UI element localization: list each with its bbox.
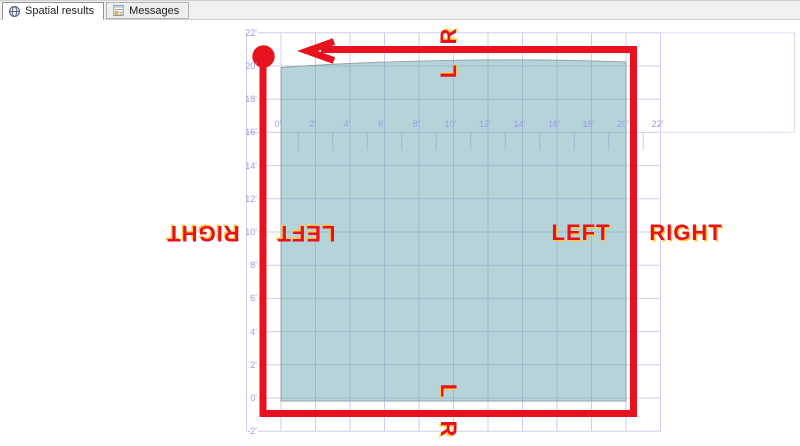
right-edge-outer-label: RIGHT (649, 222, 722, 244)
y-tick-label: 6' (250, 293, 257, 303)
right-edge-inner-label: LEFT (552, 222, 611, 244)
results-tab-bar: Spatial results Messages (0, 0, 800, 20)
y-tick-label: -2' (247, 426, 257, 436)
x-tick-label: 12' (479, 119, 491, 129)
y-tick-label: 12' (245, 194, 257, 204)
left-edge-inner-label: LEFT (277, 222, 336, 244)
y-tick-label: 2' (250, 360, 257, 370)
x-tick-label: 10' (445, 119, 457, 129)
y-tick-label: 4' (250, 327, 257, 337)
bottom-edge-outer-label: R (437, 421, 459, 438)
y-tick-label: 20' (245, 61, 257, 71)
y-tick-label: 8' (250, 260, 257, 270)
x-tick-label: 14' (514, 119, 526, 129)
bottom-edge-inner-label: L (437, 384, 459, 398)
y-tick-label: 0' (250, 393, 257, 403)
left-edge-outer-label: RIGHT (166, 222, 239, 244)
tab-label: Spatial results (25, 5, 94, 17)
tab-spatial-results[interactable]: Spatial results (2, 2, 104, 20)
messages-icon (112, 4, 125, 17)
y-tick-label: 22' (245, 28, 257, 38)
tab-label: Messages (129, 5, 179, 17)
y-tick-label: 16' (245, 127, 257, 137)
top-edge-outer-label: R (438, 28, 460, 45)
y-tick-label: 18' (245, 94, 257, 104)
x-tick-label: 22' (652, 119, 664, 129)
x-tick-label: 4' (344, 119, 351, 129)
top-edge-inner-label: L (438, 64, 460, 78)
x-tick-label: 6' (378, 119, 385, 129)
x-tick-label: 20' (617, 119, 629, 129)
spatial-viewer-canvas[interactable]: 22' 20' 18' 16' 14' 12' 10' 8' 6' 4' 2' … (0, 0, 800, 446)
x-tick-label: 18' (583, 119, 595, 129)
tab-messages[interactable]: Messages (106, 2, 189, 19)
y-tick-label: 10' (245, 227, 257, 237)
x-tick-label: 2' (309, 119, 316, 129)
x-tick-label: 0' (275, 119, 282, 129)
x-tick-label: 16' (548, 119, 560, 129)
y-tick-label: 14' (245, 161, 257, 171)
grid-extended-lines (661, 33, 795, 133)
globe-icon (8, 5, 21, 18)
x-tick-label: 8' (413, 119, 420, 129)
